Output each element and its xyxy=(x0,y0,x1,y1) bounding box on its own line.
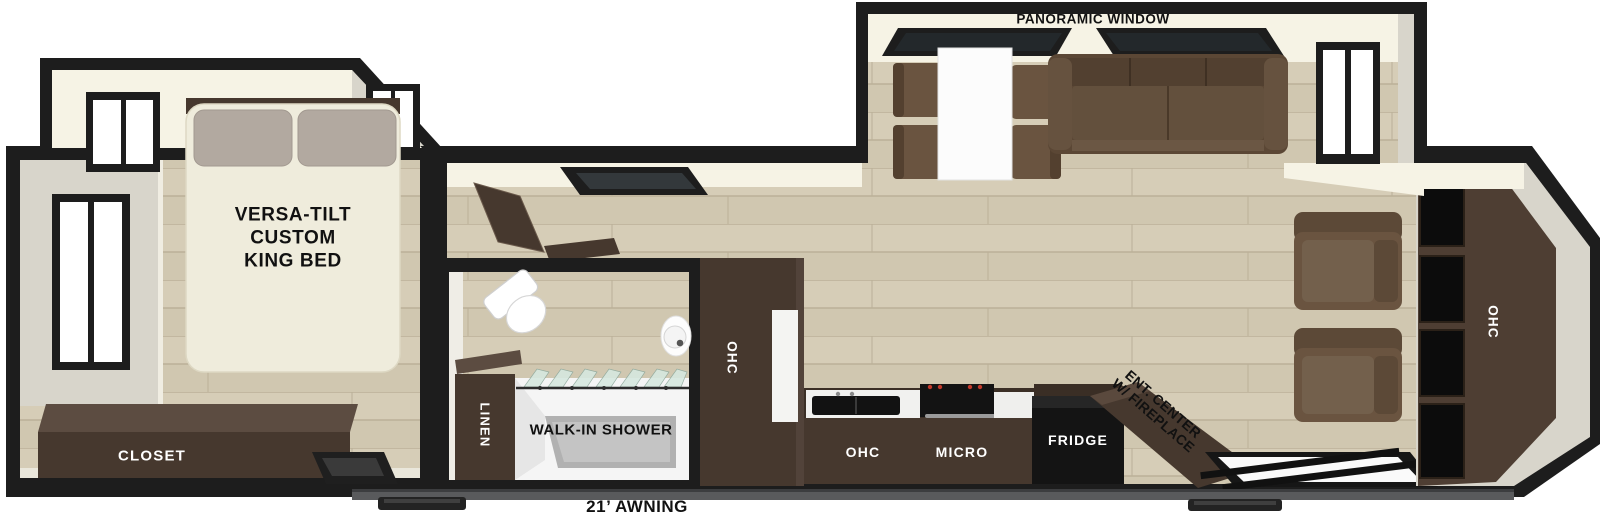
kitchen-pantry-ohc-label: OHC xyxy=(725,341,740,375)
entry-step-front xyxy=(378,497,466,510)
rear-ohc-label: OHC xyxy=(1486,305,1501,339)
pantry-cabinet xyxy=(700,258,804,486)
theater-seat-2 xyxy=(1294,328,1402,422)
linen-label: LINEN xyxy=(478,403,493,448)
panoramic-window-right xyxy=(1096,28,1284,56)
closet-label: CLOSET xyxy=(118,448,186,465)
awning-bar xyxy=(352,489,1514,500)
theater-seat-1 xyxy=(1294,212,1402,310)
dinette-table xyxy=(938,48,1012,180)
shelf-opening xyxy=(1420,330,1464,396)
entry-step-rear xyxy=(1188,499,1282,511)
dinette xyxy=(893,48,1061,180)
panoramic-window-label: PANORAMIC WINDOW xyxy=(1016,12,1169,27)
bedroom-slide-window-left xyxy=(86,92,160,172)
bedroom-window xyxy=(52,194,130,370)
kitchen-ohc-label: OHC xyxy=(846,444,881,460)
micro-label: MICRO xyxy=(936,444,989,460)
floorplan-canvas: VERSA-TILT CUSTOM KING BED CLOSET LINEN … xyxy=(0,0,1600,517)
fridge-label: FRIDGE xyxy=(1048,432,1108,448)
shelf-opening xyxy=(1420,256,1464,322)
sofa xyxy=(1048,54,1288,154)
living-slide-window-right xyxy=(1316,42,1380,164)
entry-steps xyxy=(1200,448,1438,491)
awning-label: 21’ AWNING xyxy=(586,497,688,517)
bedroom-step xyxy=(312,452,398,484)
closet xyxy=(38,404,358,478)
bathroom xyxy=(435,258,703,494)
walk-in-shower-label: WALK-IN SHOWER xyxy=(530,422,673,439)
pillow xyxy=(298,110,396,166)
pillow xyxy=(194,110,292,166)
bed-label: VERSA-TILT CUSTOM KING BED xyxy=(235,204,351,273)
bedroom xyxy=(20,70,424,484)
shelf-opening xyxy=(1420,404,1464,478)
bathroom-sink xyxy=(661,316,691,356)
hall-skylight xyxy=(560,167,708,195)
